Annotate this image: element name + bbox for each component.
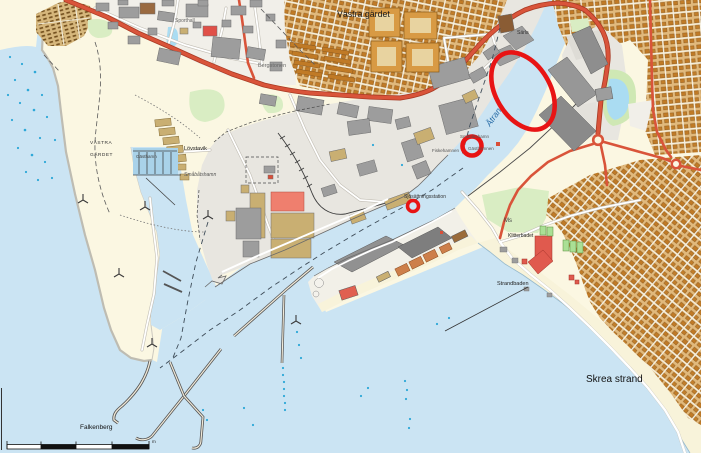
svg-text:GÄRDET: GÄRDET — [90, 151, 113, 158]
svg-text:Sjösättningsstation: Sjösättningsstation — [404, 194, 446, 200]
svg-text:Gästhamnen: Gästhamnen — [468, 146, 494, 151]
svg-text:Klitterbadet: Klitterbadet — [508, 233, 534, 239]
svg-text:Fiskehamnen: Fiskehamnen — [432, 148, 460, 153]
svg-text:Särla: Särla — [517, 30, 529, 36]
svg-text:Västra gärdet: Västra gärdet — [337, 9, 390, 19]
svg-text:Småbåtshamn: Småbåtshamn — [460, 133, 490, 139]
svg-text:Strandbaden: Strandbaden — [497, 281, 529, 287]
svg-text:Bergstonen: Bergstonen — [258, 63, 286, 69]
svg-text:VÄSTRA: VÄSTRA — [90, 139, 112, 146]
svg-text:Falkenberg: Falkenberg — [80, 424, 113, 431]
svg-text:Gästhamn: Gästhamn — [136, 154, 157, 159]
svg-text:Skrea strand: Skrea strand — [586, 374, 643, 385]
svg-text:Sporthall: Sporthall — [175, 18, 195, 24]
svg-text:Ms: Ms — [504, 218, 512, 224]
svg-text:Småbåtshamn: Småbåtshamn — [184, 171, 216, 178]
svg-text:Lövstavik: Lövstavik — [184, 146, 207, 152]
svg-text:m: m — [152, 439, 156, 444]
